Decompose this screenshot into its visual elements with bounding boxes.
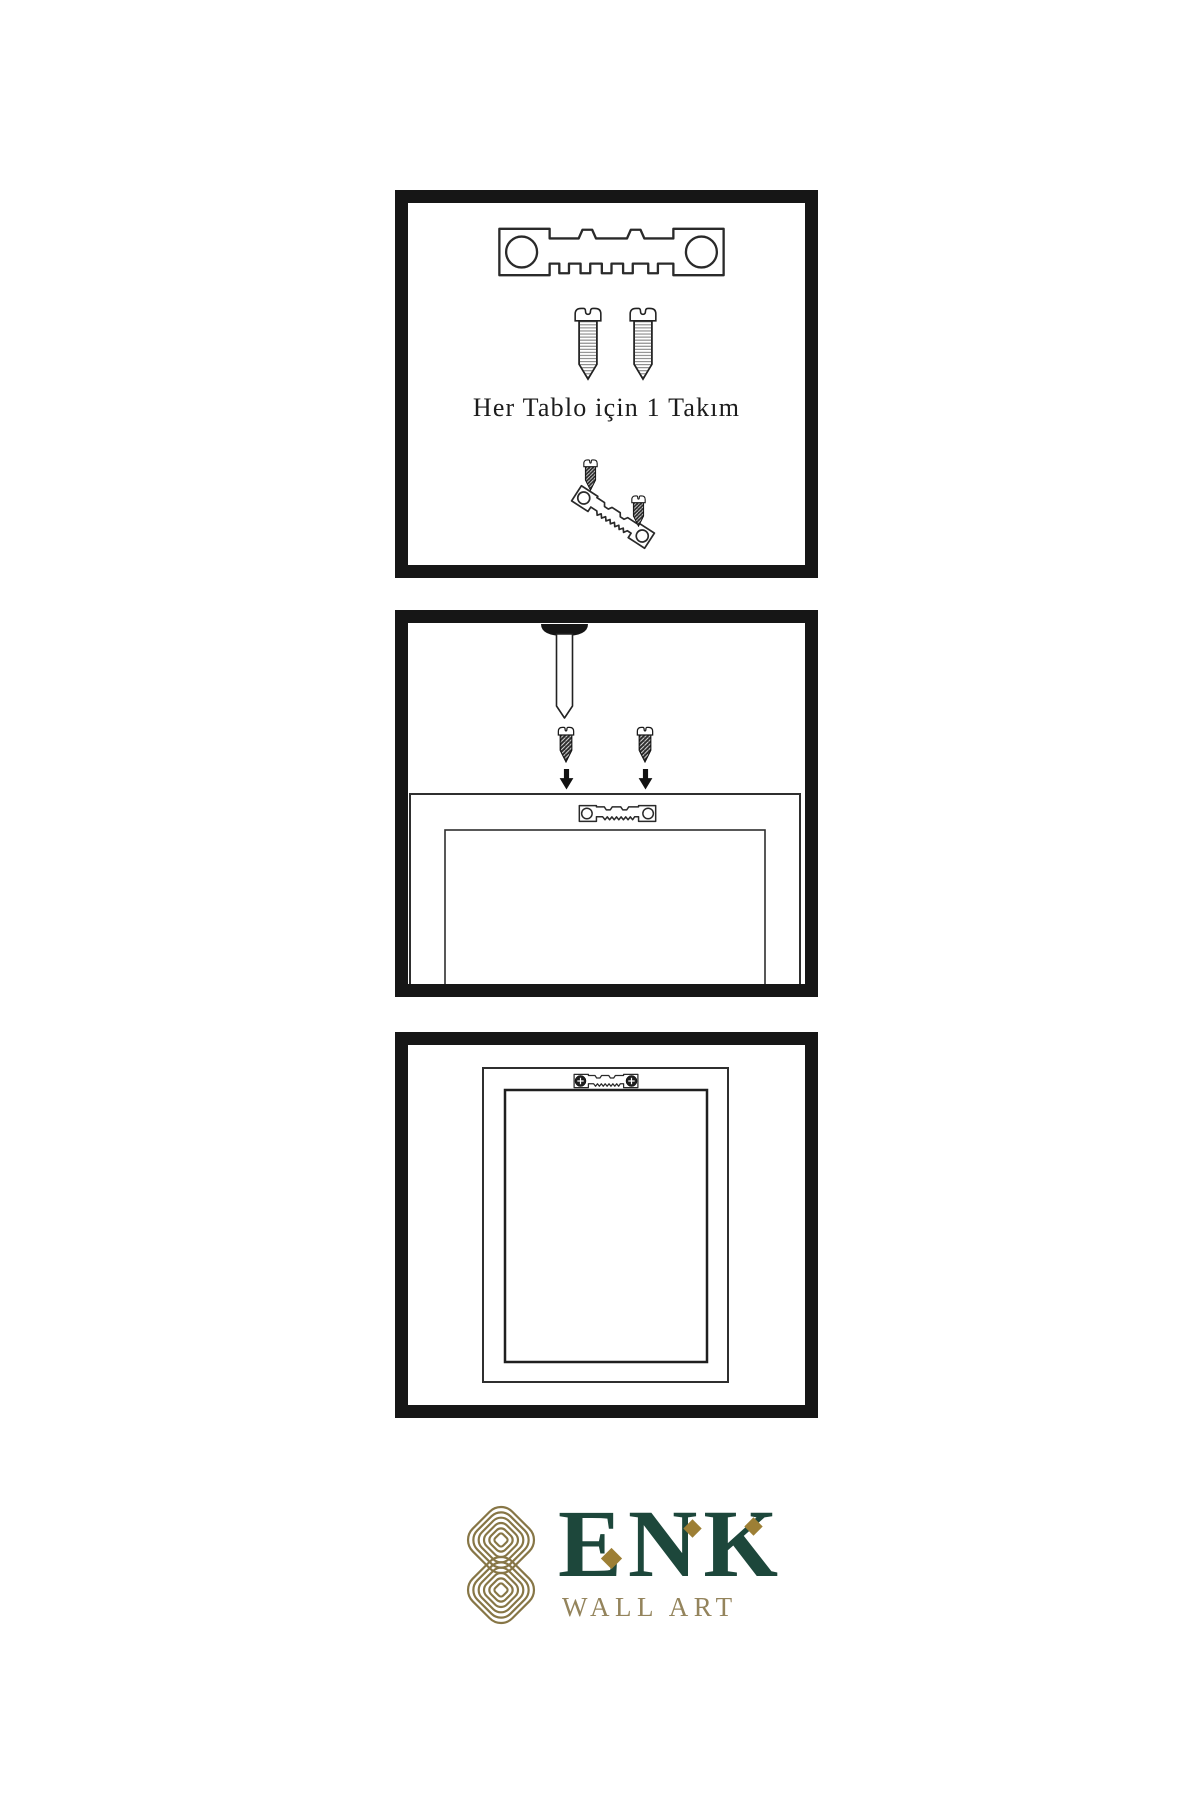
- brand-name: ENK: [558, 1496, 784, 1592]
- mounted-frame-panel: [395, 1032, 818, 1418]
- kit-label: Her Tablo için 1 Takım: [408, 393, 805, 423]
- sawtooth-hanger-icon: [499, 229, 723, 275]
- dark-screw-icon: [637, 727, 652, 762]
- frame-outline: [410, 794, 800, 984]
- frame-outline: [483, 1068, 728, 1382]
- knot-icon: [440, 1500, 562, 1630]
- hardware-kit-panel: Her Tablo için 1 Takım: [395, 190, 818, 578]
- arrow-down-icon: [560, 769, 574, 790]
- wall-mounting-panel: [395, 610, 818, 997]
- sawtooth-hanger-mounted-icon: [574, 1074, 638, 1087]
- screw-icon: [630, 308, 656, 379]
- screw-icon: [575, 308, 601, 379]
- brand-subtitle: WALL ART: [562, 1592, 738, 1623]
- sawtooth-hanger-icon: [579, 806, 655, 822]
- dark-screw-icon: [584, 460, 597, 490]
- dark-screw-icon: [558, 727, 573, 762]
- arrow-down-icon: [639, 769, 653, 790]
- nail-icon: [541, 624, 588, 718]
- instruction-sheet: Her Tablo için 1 Takım: [0, 0, 1200, 1800]
